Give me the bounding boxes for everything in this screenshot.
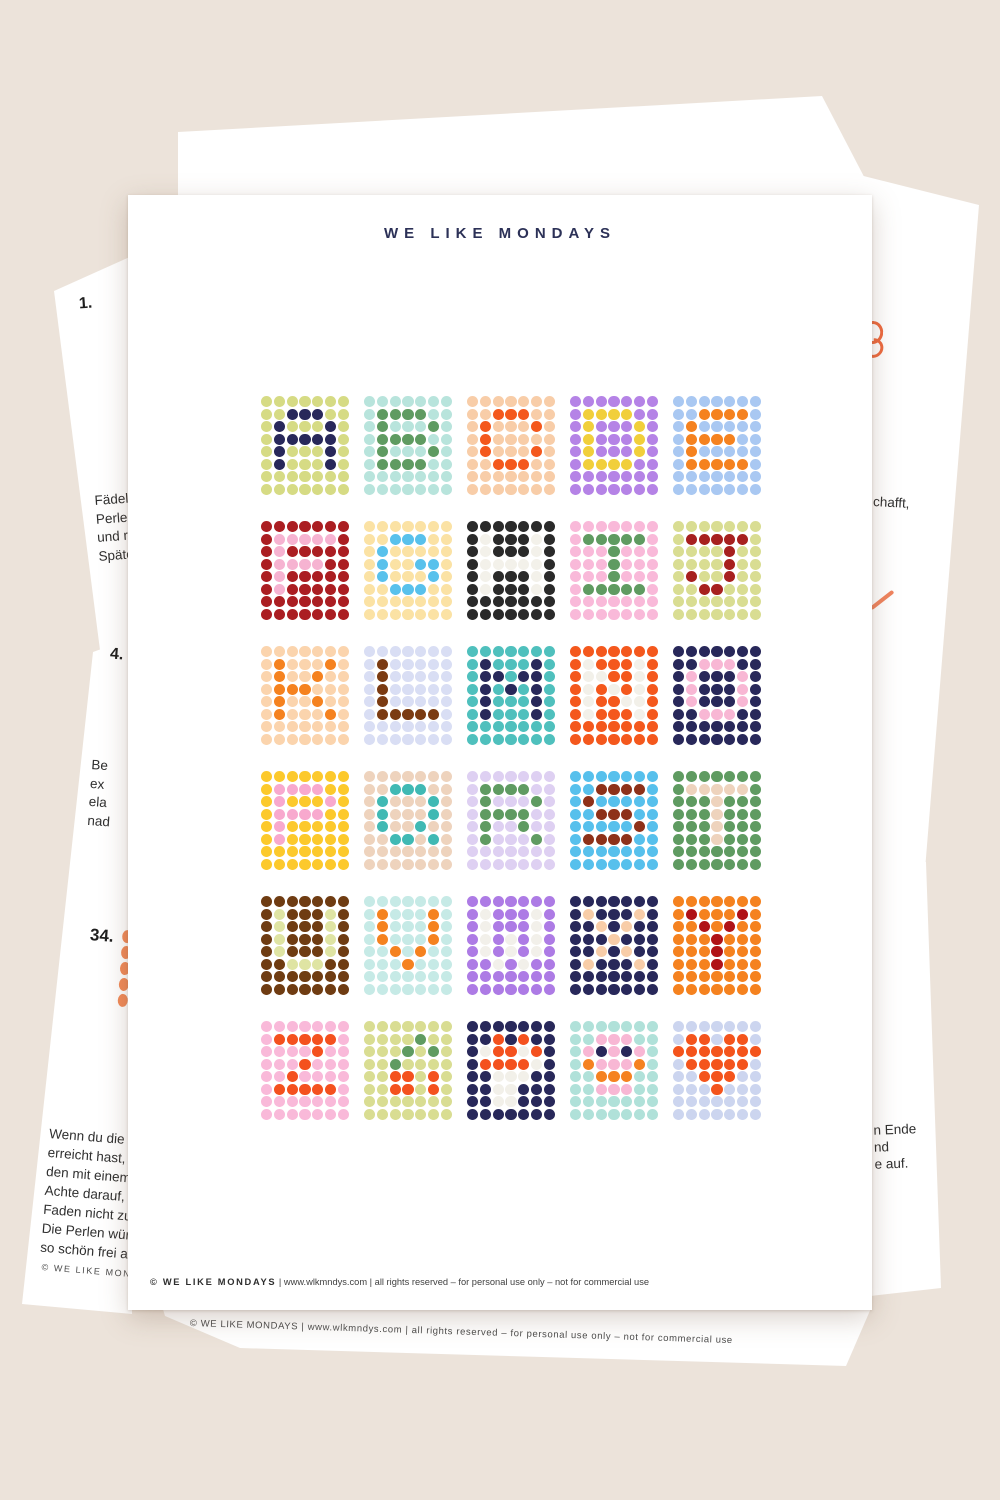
bead — [750, 684, 761, 695]
bead — [402, 459, 413, 470]
bead — [390, 396, 401, 407]
bead — [338, 1059, 349, 1070]
bead — [724, 471, 735, 482]
bead — [711, 434, 722, 445]
bead — [390, 1084, 401, 1095]
bead — [686, 609, 697, 620]
bead — [299, 696, 310, 707]
bead — [377, 1084, 388, 1095]
bead — [531, 1059, 542, 1070]
bead — [583, 1071, 594, 1082]
bead — [493, 571, 504, 582]
bead — [415, 909, 426, 920]
bead — [364, 1109, 375, 1120]
bead — [299, 521, 310, 532]
bead — [493, 971, 504, 982]
bead — [570, 1059, 581, 1070]
bead — [711, 946, 722, 957]
bead — [596, 1021, 607, 1032]
bead — [364, 534, 375, 545]
bead — [441, 571, 452, 582]
bead — [596, 1046, 607, 1057]
bead — [377, 421, 388, 432]
bead — [737, 709, 748, 720]
bead — [750, 784, 761, 795]
bead — [531, 734, 542, 745]
bead — [570, 859, 581, 870]
bead — [402, 471, 413, 482]
bead — [505, 646, 516, 657]
bead — [493, 671, 504, 682]
bead — [621, 584, 632, 595]
bead — [711, 484, 722, 495]
bead — [518, 409, 529, 420]
bead — [570, 659, 581, 670]
bead — [338, 1096, 349, 1107]
bead — [415, 471, 426, 482]
bead — [480, 809, 491, 820]
bead — [325, 1034, 336, 1045]
bead — [377, 521, 388, 532]
bead — [634, 821, 645, 832]
bead — [325, 921, 336, 932]
bead — [338, 734, 349, 745]
bead — [737, 834, 748, 845]
bead — [570, 584, 581, 595]
bead — [325, 821, 336, 832]
bead — [699, 546, 710, 557]
bead — [673, 559, 684, 570]
bead — [673, 771, 684, 782]
bead — [608, 459, 619, 470]
bead — [583, 659, 594, 670]
bead — [505, 784, 516, 795]
bead — [686, 534, 697, 545]
bead — [428, 809, 439, 820]
bead — [299, 709, 310, 720]
bead — [647, 446, 658, 457]
bead — [518, 909, 529, 920]
bead — [274, 596, 285, 607]
bead — [647, 796, 658, 807]
bead — [737, 596, 748, 607]
bead — [750, 971, 761, 982]
bead — [647, 584, 658, 595]
bead — [261, 396, 272, 407]
bead — [480, 859, 491, 870]
bead — [364, 471, 375, 482]
bead — [402, 959, 413, 970]
bead — [544, 946, 555, 957]
bead — [750, 834, 761, 845]
bead — [390, 546, 401, 557]
bead — [261, 1059, 272, 1070]
bead — [390, 959, 401, 970]
bead — [699, 1084, 710, 1095]
bead — [505, 1096, 516, 1107]
bead — [686, 771, 697, 782]
bead — [634, 709, 645, 720]
bead — [621, 796, 632, 807]
bead — [518, 659, 529, 670]
bead — [325, 696, 336, 707]
bead — [377, 809, 388, 820]
bead — [583, 396, 594, 407]
bead — [261, 859, 272, 870]
bead — [518, 1096, 529, 1107]
bead — [428, 721, 439, 732]
bead — [480, 434, 491, 445]
bead — [583, 459, 594, 470]
bead — [338, 959, 349, 970]
bead — [724, 984, 735, 995]
bead — [750, 984, 761, 995]
bead — [299, 896, 310, 907]
bead — [338, 1034, 349, 1045]
bead — [287, 571, 298, 582]
bead — [699, 984, 710, 995]
bead — [608, 571, 619, 582]
bead — [261, 934, 272, 945]
bead — [544, 421, 555, 432]
bead — [711, 709, 722, 720]
bead — [673, 521, 684, 532]
bead — [377, 921, 388, 932]
bead — [724, 659, 735, 670]
bead — [338, 1021, 349, 1032]
bead — [274, 1109, 285, 1120]
bead — [415, 846, 426, 857]
bead — [415, 671, 426, 682]
bead — [596, 484, 607, 495]
bead — [737, 796, 748, 807]
bead — [364, 596, 375, 607]
bead — [621, 721, 632, 732]
bead — [467, 684, 478, 695]
bead — [699, 1034, 710, 1045]
bead — [480, 971, 491, 982]
bead — [544, 959, 555, 970]
bead — [312, 971, 323, 982]
bead — [596, 459, 607, 470]
bead — [505, 671, 516, 682]
bead — [325, 1096, 336, 1107]
bead — [608, 846, 619, 857]
bead — [274, 1059, 285, 1070]
bead — [634, 434, 645, 445]
bead — [364, 984, 375, 995]
bead — [505, 721, 516, 732]
bead — [608, 696, 619, 707]
bead — [377, 984, 388, 995]
page-footer: © WE LIKE MONDAYS | www.wlkmndys.com | a… — [150, 1277, 649, 1287]
bead — [634, 859, 645, 870]
bead — [686, 1071, 697, 1082]
bead-tile-T — [673, 771, 761, 870]
bead — [338, 859, 349, 870]
bead — [634, 396, 645, 407]
bead — [338, 571, 349, 582]
bead — [467, 909, 478, 920]
bead — [467, 809, 478, 820]
bead — [699, 659, 710, 670]
bead-tile-R — [467, 771, 555, 870]
bead — [570, 971, 581, 982]
bead — [428, 396, 439, 407]
bead — [428, 571, 439, 582]
bead — [364, 1046, 375, 1057]
bead — [402, 1109, 413, 1120]
bead — [750, 809, 761, 820]
bead-tile-I — [570, 521, 658, 620]
bead — [750, 609, 761, 620]
bead-tile-A — [261, 396, 349, 495]
bead — [299, 596, 310, 607]
bead — [441, 696, 452, 707]
bead-tile-P — [261, 771, 349, 870]
bead — [570, 896, 581, 907]
bead — [686, 571, 697, 582]
bead — [312, 1096, 323, 1107]
bead — [699, 821, 710, 832]
bead — [274, 659, 285, 670]
bead — [505, 521, 516, 532]
bead — [724, 796, 735, 807]
bead — [673, 984, 684, 995]
bead — [583, 934, 594, 945]
bead — [634, 984, 645, 995]
bead — [686, 1096, 697, 1107]
bead — [518, 396, 529, 407]
bead — [583, 596, 594, 607]
bead — [699, 859, 710, 870]
bead — [364, 484, 375, 495]
bead — [402, 521, 413, 532]
bead — [493, 609, 504, 620]
bead — [261, 459, 272, 470]
bead — [673, 1096, 684, 1107]
bead — [647, 1021, 658, 1032]
bead — [621, 971, 632, 982]
bead — [493, 709, 504, 720]
bead — [531, 546, 542, 557]
bead — [699, 1109, 710, 1120]
bead — [737, 484, 748, 495]
bead — [505, 1059, 516, 1070]
bead — [608, 596, 619, 607]
bead — [596, 721, 607, 732]
bead — [647, 771, 658, 782]
bead — [261, 909, 272, 920]
bead — [325, 534, 336, 545]
bead — [711, 446, 722, 457]
bead — [325, 1071, 336, 1082]
bead — [274, 734, 285, 745]
bead — [570, 534, 581, 545]
bead — [570, 671, 581, 682]
bead — [647, 1109, 658, 1120]
bead — [415, 796, 426, 807]
bead — [312, 646, 323, 657]
bead — [377, 609, 388, 620]
bead — [518, 1071, 529, 1082]
bead — [377, 534, 388, 545]
bead — [608, 409, 619, 420]
bead — [274, 909, 285, 920]
bead — [441, 834, 452, 845]
bead — [711, 809, 722, 820]
bead — [338, 846, 349, 857]
bead — [467, 696, 478, 707]
bead — [596, 821, 607, 832]
bead — [377, 571, 388, 582]
bead — [364, 784, 375, 795]
bead-tile-smiley — [570, 1021, 658, 1120]
bead-tile-E — [673, 396, 761, 495]
bead — [724, 1034, 735, 1045]
bead — [673, 846, 684, 857]
bead — [338, 834, 349, 845]
bead — [364, 1071, 375, 1082]
bead — [312, 834, 323, 845]
bead — [570, 734, 581, 745]
bead — [325, 646, 336, 657]
bead-tile-C — [467, 396, 555, 495]
bead — [673, 971, 684, 982]
bead — [364, 1021, 375, 1032]
bead — [441, 684, 452, 695]
bead — [570, 459, 581, 470]
bead — [299, 946, 310, 957]
bead — [467, 471, 478, 482]
bead — [608, 609, 619, 620]
bead — [724, 921, 735, 932]
bead — [737, 421, 748, 432]
bead — [480, 484, 491, 495]
bead — [390, 809, 401, 820]
bead — [441, 859, 452, 870]
bead — [583, 1096, 594, 1107]
bead — [287, 659, 298, 670]
bead — [480, 546, 491, 557]
bead — [338, 534, 349, 545]
bead — [505, 434, 516, 445]
bead — [570, 396, 581, 407]
top-page: WE LIKE MONDAYS © WE LIKE MONDAYS | www.… — [128, 195, 872, 1310]
bead — [686, 921, 697, 932]
bead — [699, 734, 710, 745]
bead — [274, 546, 285, 557]
bead — [261, 1021, 272, 1032]
bead — [544, 396, 555, 407]
bead — [711, 396, 722, 407]
bead — [608, 821, 619, 832]
bead — [402, 971, 413, 982]
bead — [737, 1071, 748, 1082]
bead — [325, 584, 336, 595]
bead — [415, 959, 426, 970]
bead — [647, 946, 658, 957]
bead — [261, 646, 272, 657]
bead — [364, 846, 375, 857]
bead — [480, 1021, 491, 1032]
bead — [531, 484, 542, 495]
bead — [570, 571, 581, 582]
bead — [402, 771, 413, 782]
bead — [621, 671, 632, 682]
bead — [364, 434, 375, 445]
bead — [737, 646, 748, 657]
bead — [415, 459, 426, 470]
bead — [583, 921, 594, 932]
bead — [441, 971, 452, 982]
bead — [570, 984, 581, 995]
bead — [415, 684, 426, 695]
bead — [299, 721, 310, 732]
bead — [737, 1084, 748, 1095]
bead — [621, 959, 632, 970]
bead — [325, 1109, 336, 1120]
bead — [518, 534, 529, 545]
bead — [325, 446, 336, 457]
bead — [390, 846, 401, 857]
bead — [274, 859, 285, 870]
bead — [750, 771, 761, 782]
bead — [518, 971, 529, 982]
bead — [325, 459, 336, 470]
bead — [287, 559, 298, 570]
bead — [428, 459, 439, 470]
bead — [544, 521, 555, 532]
bead — [274, 846, 285, 857]
bead — [686, 796, 697, 807]
bead — [621, 1046, 632, 1057]
bead — [428, 909, 439, 920]
bead — [261, 846, 272, 857]
bead — [364, 571, 375, 582]
bead — [364, 821, 375, 832]
bead — [493, 721, 504, 732]
bead — [570, 721, 581, 732]
bead — [621, 896, 632, 907]
bead — [299, 784, 310, 795]
bead — [261, 959, 272, 970]
bead — [480, 671, 491, 682]
bead — [724, 409, 735, 420]
bead — [686, 1084, 697, 1095]
bead — [287, 796, 298, 807]
bead — [621, 696, 632, 707]
bead — [634, 971, 645, 982]
bead — [493, 696, 504, 707]
bead — [699, 434, 710, 445]
bead — [402, 1059, 413, 1070]
bead — [428, 984, 439, 995]
bead — [621, 859, 632, 870]
bead — [415, 571, 426, 582]
bead — [287, 896, 298, 907]
bead — [364, 1059, 375, 1070]
bead-tile-heart — [673, 1021, 761, 1120]
bead — [711, 771, 722, 782]
bead — [596, 534, 607, 545]
bead — [737, 1059, 748, 1070]
bead — [686, 834, 697, 845]
bead — [480, 1071, 491, 1082]
bead — [467, 446, 478, 457]
bead — [261, 821, 272, 832]
bead — [686, 846, 697, 857]
